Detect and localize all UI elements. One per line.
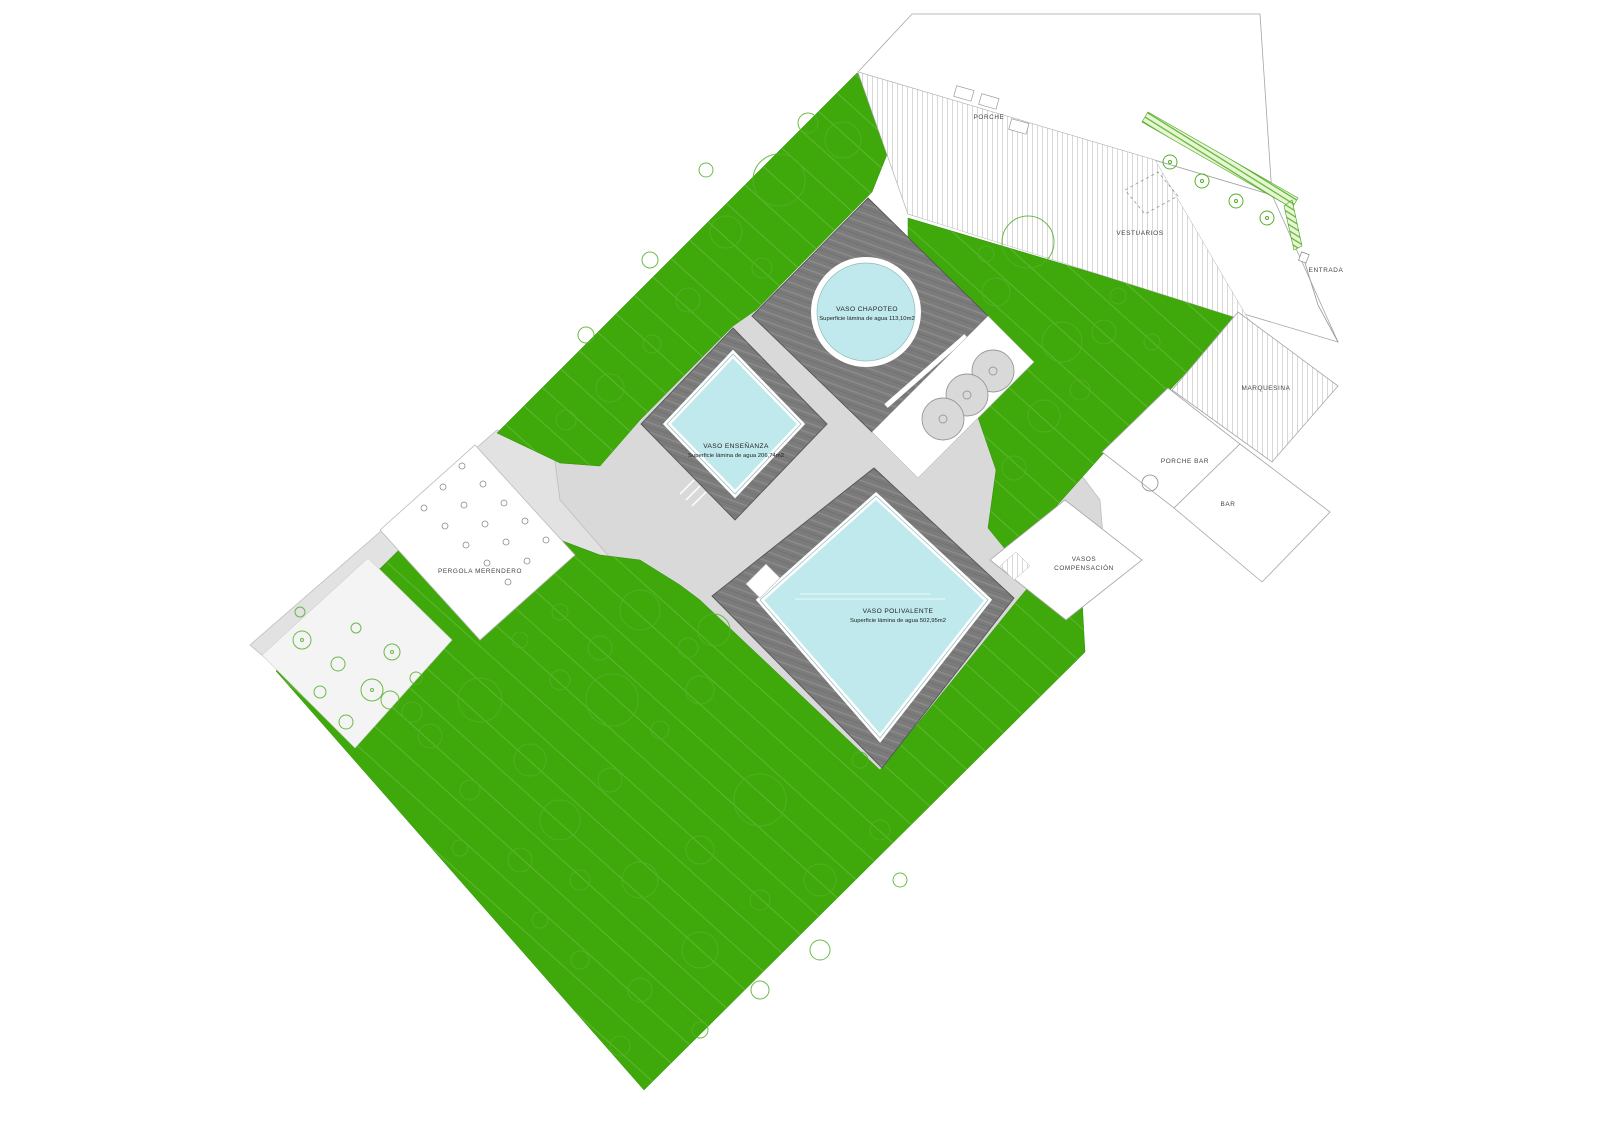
label-vestuarios: VESTUARIOS [1116, 230, 1163, 237]
label-porche-bar: PORCHE BAR [1161, 458, 1209, 465]
label-porche: PORCHE [974, 114, 1005, 121]
label-vaso-polivalente-area: Superficie lámina de agua 502,95m2 [850, 618, 946, 624]
label-vaso-polivalente: VASO POLIVALENTE [863, 608, 934, 615]
label-entrada: ENTRADA [1309, 267, 1344, 274]
label-vaso-chapoteo-area: Superficie lámina de agua 113,10m2 [819, 316, 915, 322]
site-plan-canvas: PORCHE VESTUARIOS ENTRADA MARQUESINA POR… [0, 0, 1600, 1130]
label-vasos-compensacion-2: COMPENSACIÓN [1054, 563, 1114, 572]
label-vaso-ensenanza: VASO ENSEÑANZA [703, 441, 769, 450]
site-plan-drawing: PORCHE VESTUARIOS ENTRADA MARQUESINA POR… [0, 0, 1600, 1130]
label-vasos-compensacion-1: VASOS [1072, 556, 1097, 563]
label-marquesina: MARQUESINA [1242, 385, 1291, 392]
label-vaso-ensenanza-area: Superficie lámina de agua 206,74m2 [688, 453, 784, 459]
label-bar: BAR [1221, 501, 1236, 508]
label-pergola-merendero: PERGOLA MERENDERO [438, 568, 522, 575]
label-vaso-chapoteo: VASO CHAPOTEO [836, 306, 898, 313]
